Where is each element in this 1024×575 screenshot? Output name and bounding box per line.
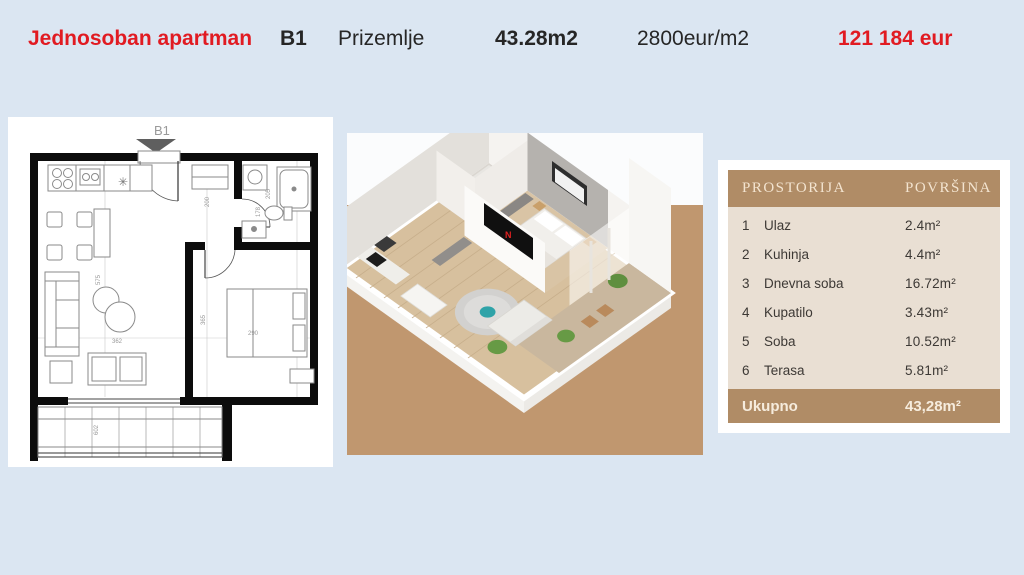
room-name: Kupatilo <box>764 305 905 320</box>
room-area: 4.4m² <box>905 247 1000 262</box>
plan-symbol-star: ✳ <box>118 175 128 189</box>
svg-text:200: 200 <box>205 196 211 207</box>
room-area: 5.81m² <box>905 363 1000 378</box>
rooms-table-header: PROSTORIJA POVRŠINA <box>728 170 1000 207</box>
kitchen-counter <box>48 165 152 191</box>
balcony-railing <box>38 407 222 457</box>
apartment-type-label: Jednosoban apartman <box>28 27 252 51</box>
room-area: 2.4m² <box>905 218 1000 233</box>
room-area: 3.43m² <box>905 305 1000 320</box>
svg-text:602: 602 <box>94 424 100 435</box>
unit-number-label: B1 <box>280 27 307 51</box>
terrace-sliding-door <box>68 399 180 403</box>
listing-header: Jednosoban apartman B1 Prizemlje 43.28m2… <box>0 0 1024 75</box>
tv-logo: N <box>505 230 512 240</box>
room-number: 3 <box>742 276 764 291</box>
room-area: 10.52m² <box>905 334 1000 349</box>
rooms-table: PROSTORIJA POVRŠINA 1 Ulaz 2.4m² 2 Kuhin… <box>728 170 1000 423</box>
room-area: 16.72m² <box>905 276 1000 291</box>
entry-closet <box>192 165 228 189</box>
floor-plan-drawing: B1 <box>8 117 333 467</box>
room-name: Dnevna soba <box>764 276 905 291</box>
rooms-table-body: 1 Ulaz 2.4m² 2 Kuhinja 4.4m² 3 Dnevna so… <box>728 207 1000 389</box>
room-number: 5 <box>742 334 764 349</box>
room-name: Kuhinja <box>764 247 905 262</box>
table-row: 2 Kuhinja 4.4m² <box>728 247 1000 262</box>
svg-text:575: 575 <box>96 274 102 285</box>
svg-text:365: 365 <box>201 314 207 325</box>
coffee-table <box>50 353 146 385</box>
rooms-table-footer: Ukupno 43,28m² <box>728 389 1000 423</box>
table-row: 6 Terasa 5.81m² <box>728 363 1000 378</box>
floor-label: Prizemlje <box>338 27 424 51</box>
svg-text:290: 290 <box>248 331 259 337</box>
floor-plan-panel: B1 <box>8 117 333 467</box>
bedroom-door <box>205 250 235 278</box>
room-name: Terasa <box>764 363 905 378</box>
price-per-m2-label: 2800eur/m2 <box>637 27 749 51</box>
apartment-listing-page: Jednosoban apartman B1 Prizemlje 43.28m2… <box>0 0 1024 575</box>
total-label: Ukupno <box>742 398 905 415</box>
room-number: 6 <box>742 363 764 378</box>
room-number: 2 <box>742 247 764 262</box>
room-number: 1 <box>742 218 764 233</box>
col-area-header: POVRŠINA <box>905 180 1000 197</box>
table-row: 4 Kupatilo 3.43m² <box>728 305 1000 320</box>
total-price-label: 121 184 eur <box>838 27 952 51</box>
svg-text:205: 205 <box>266 188 272 199</box>
render-3d-drawing: N <box>347 133 703 455</box>
dining-set <box>47 209 110 260</box>
sofa <box>45 272 79 356</box>
table-row: 1 Ulaz 2.4m² <box>728 218 1000 233</box>
bathroom-fixtures <box>242 165 311 238</box>
table-row: 5 Soba 10.52m² <box>728 334 1000 349</box>
col-room-header: PROSTORIJA <box>742 180 905 197</box>
svg-text:362: 362 <box>112 339 123 345</box>
rooms-table-panel: PROSTORIJA POVRŠINA 1 Ulaz 2.4m² 2 Kuhin… <box>718 160 1010 433</box>
room-name: Soba <box>764 334 905 349</box>
room-name: Ulaz <box>764 218 905 233</box>
bed <box>227 289 314 383</box>
render-3d-panel: N <box>347 133 703 455</box>
total-area-value: 43,28m² <box>905 398 1000 415</box>
round-chairs <box>93 287 135 332</box>
plan-unit-label: B1 <box>154 123 170 138</box>
room-number: 4 <box>742 305 764 320</box>
table-row: 3 Dnevna soba 16.72m² <box>728 276 1000 291</box>
svg-text:178: 178 <box>256 206 262 217</box>
total-area-label: 43.28m2 <box>495 27 578 51</box>
